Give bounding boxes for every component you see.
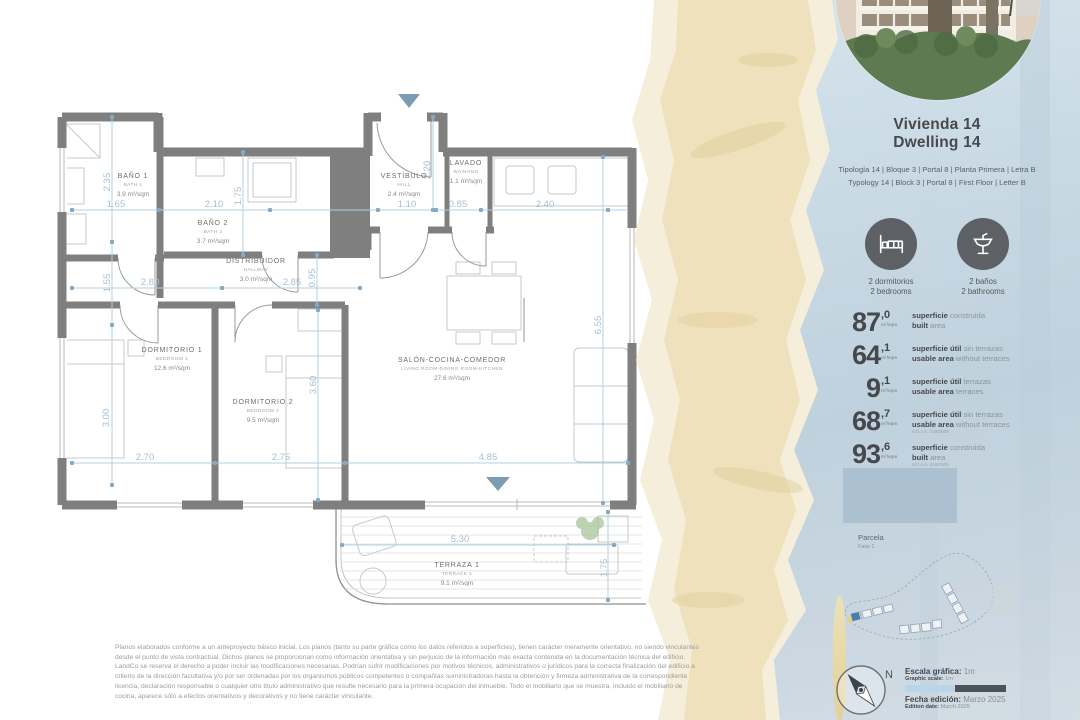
dimension-label: 2.85 [283,277,302,288]
dimension-label: 1.65 [107,199,126,210]
room-area: 27.6 m²/sqm [434,375,470,382]
room-area: 3.7 m²/sqm [197,238,230,245]
room-label-en: HALLWAY [244,267,269,273]
dimension-label: 2.10 [205,199,224,210]
dimension-label: 2.40 [536,199,555,210]
room-area: 12.6 m²/sqm [154,365,190,372]
disclaimer-text: Planos elaborados conforme a un anteproy… [115,643,700,701]
floor-plan: BAÑO 1BATH 13.9 m²/sqmBAÑO 2BATH 23.7 m²… [0,0,700,660]
room-label: BAÑO 1 [118,171,148,180]
dimension-label: 1.10 [398,199,417,210]
dimension-label: 2.20 [422,161,433,180]
dimension-label: 6.55 [593,316,604,335]
dimension-label: 1.55 [102,274,113,293]
terrace-plant [576,517,604,540]
dimension-label: 5.30 [451,534,470,545]
room-area: 1.1 m²/sqm [450,178,483,185]
room-label: VESTÍBULO [381,171,428,180]
room-label: DISTRIBUIDOR [226,258,286,265]
room-label-en: WASHING [453,169,479,175]
room-label: SALÓN-COCINA-COMEDOR [398,355,506,364]
dimension-label: 2.70 [136,452,155,463]
room-label-en: BEDROOM 2 [247,408,279,414]
room-area: 2.4 m²/sqm [388,191,421,198]
dimension-label: 1.75 [233,187,244,206]
sand-texture-spur [833,596,846,720]
dimension-label: 0.85 [449,199,468,210]
room-label-en: TERRACE 1 [442,571,473,577]
room-label-en: BEDROOM 1 [156,356,188,362]
room-label: DORMITORIO 1 [142,347,203,354]
room-label: BAÑO 2 [198,218,228,227]
room-label-en: BATH 1 [124,182,143,188]
dimension-label: 4.85 [479,452,498,463]
room-area: 9.1 m²/sqm [441,580,474,587]
room-label-en: LIVING ROOM-DINING ROOM-KITCHEN [401,366,503,372]
watercolor-streak [1020,0,1050,720]
room-area: 9.5 m²/sqm [247,417,280,424]
torn-paper-texture [618,0,848,720]
dimension-label: 2.35 [102,173,113,192]
watercolor-streak [920,0,938,720]
dimension-label: 2.75 [272,452,291,463]
dimension-label: 3.60 [308,376,319,395]
room-label-en: BATH 2 [204,229,223,235]
room-label: LAVADO [450,160,482,167]
dimension-label: 1.75 [599,559,610,578]
room-label: DORMITORIO 2 [233,399,294,406]
dimension-label: 2.80 [141,277,160,288]
walls [62,113,636,505]
room-area: 3.9 m²/sqm [117,191,150,198]
room-area: 3.0 m²/sqm [240,276,273,283]
room-label: TERRAZA 1 [434,562,479,569]
dimension-label: 3.00 [101,409,112,428]
floorplan-sheet: Vivienda 14 Dwelling 14 Tipología 14 | B… [0,0,1080,720]
dimension-label: 0.95 [307,269,318,288]
room-label-en: HALL [397,182,411,188]
